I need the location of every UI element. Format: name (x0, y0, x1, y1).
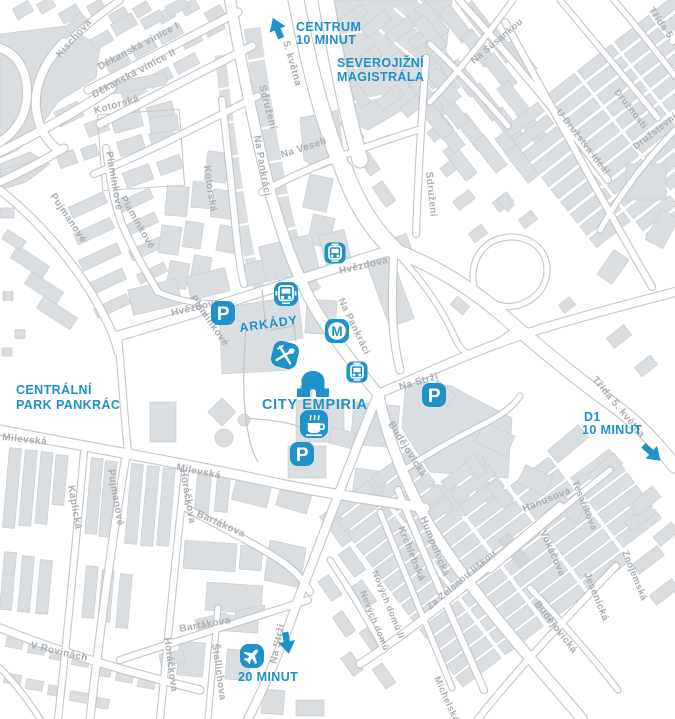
svg-text:20 MINUT: 20 MINUT (238, 670, 298, 684)
svg-text:10 MINUT: 10 MINUT (582, 423, 642, 437)
svg-text:D1: D1 (584, 410, 601, 424)
svg-text:SEVEROJIŽNÍ: SEVEROJIŽNÍ (337, 55, 424, 70)
svg-text:PARK PANKRÁC: PARK PANKRÁC (16, 397, 120, 412)
svg-text:M: M (331, 324, 342, 339)
svg-text:CENTRÁLNÍ: CENTRÁLNÍ (16, 382, 92, 397)
svg-text:CENTRUM: CENTRUM (296, 20, 361, 34)
svg-text:MAGISTRÁLA: MAGISTRÁLA (337, 69, 424, 84)
svg-text:10 MINUT: 10 MINUT (296, 33, 356, 47)
